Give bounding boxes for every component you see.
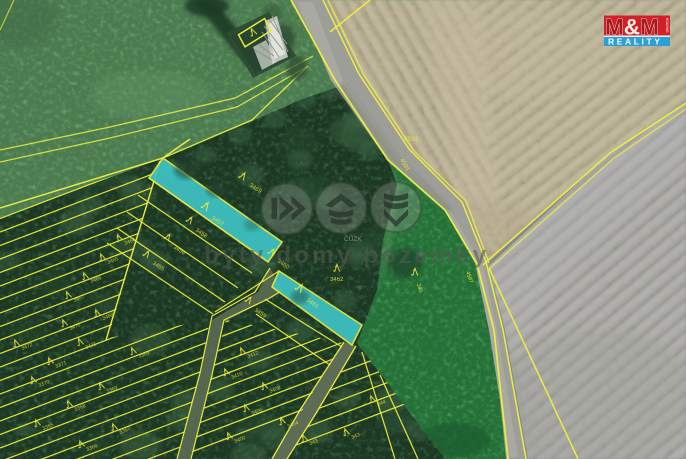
svg-text:HOLDING: HOLDING xyxy=(665,18,669,33)
svg-text:4593: 4593 xyxy=(404,136,419,143)
svg-text:byty domy pozemky: byty domy pozemky xyxy=(204,242,489,269)
svg-text:REALITY: REALITY xyxy=(608,36,663,46)
svg-text:3462: 3462 xyxy=(330,277,344,283)
